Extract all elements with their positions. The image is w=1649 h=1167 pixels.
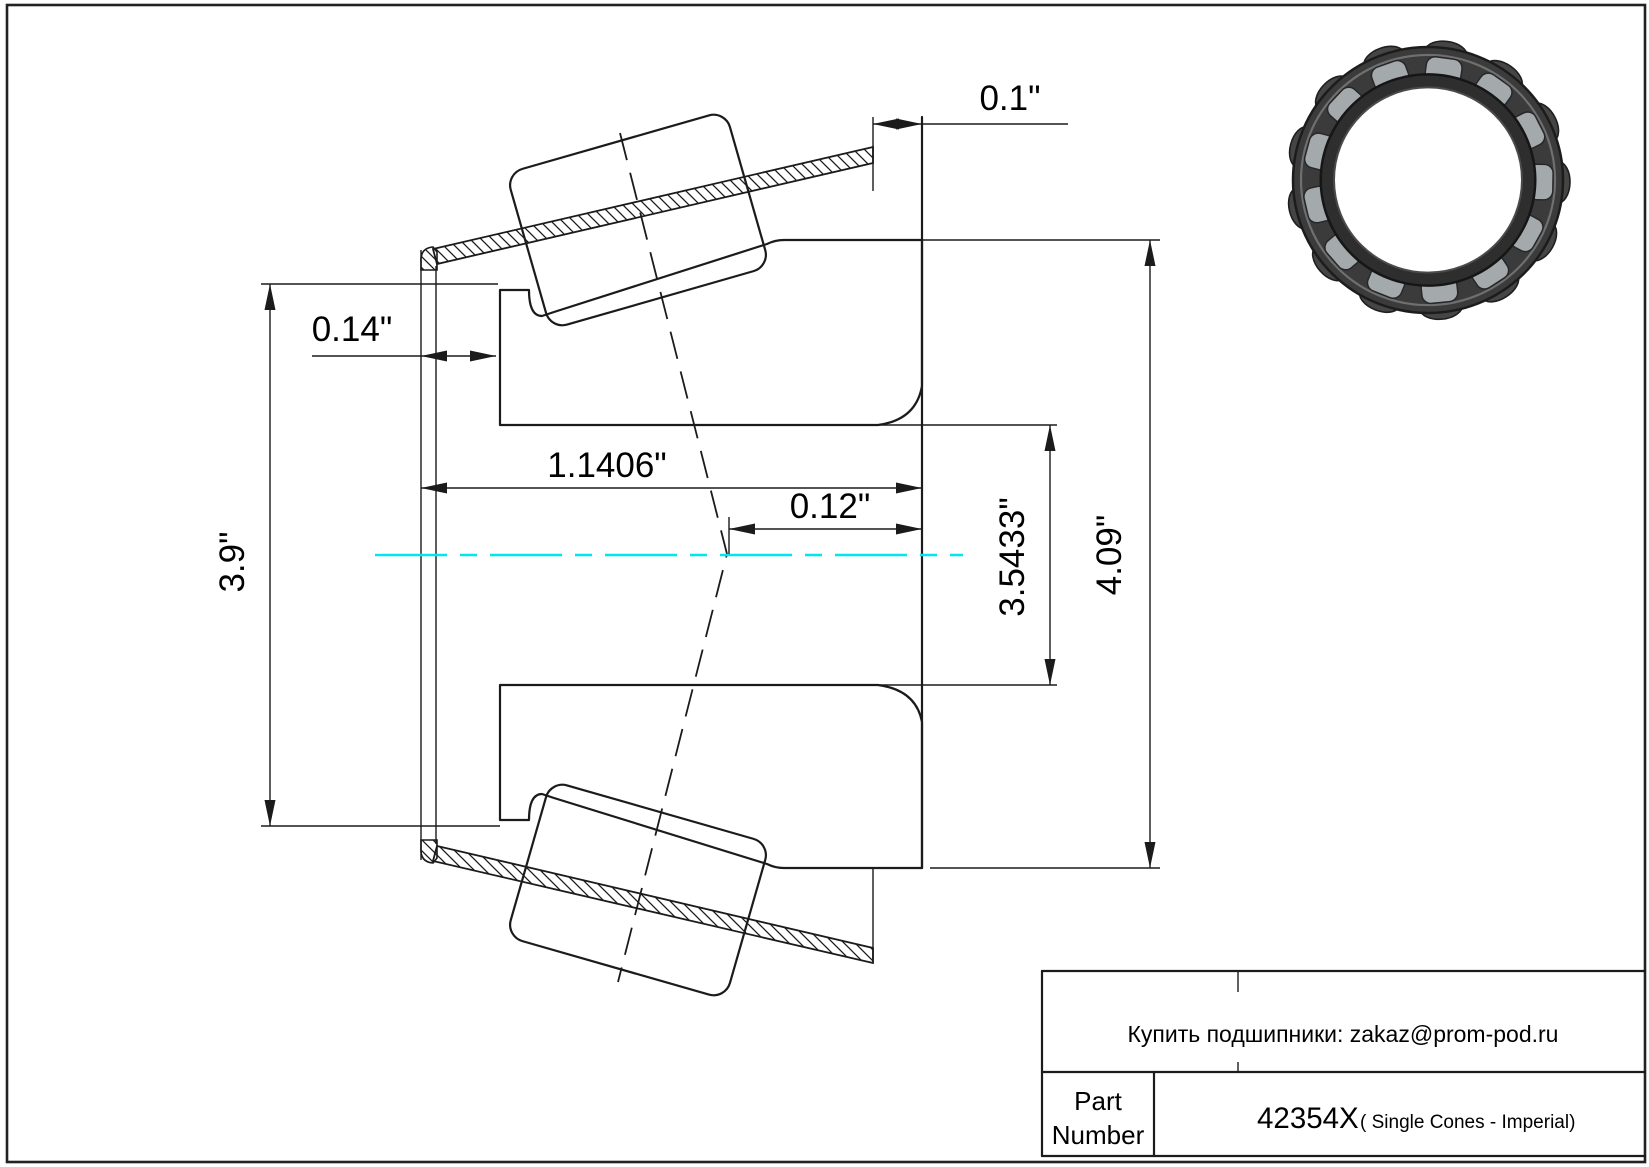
part-series-label: ( Single Cones - Imperial) <box>1360 1112 1575 1133</box>
part-number-value: 42354X <box>1257 1102 1359 1135</box>
cage-rim-curl-bottom <box>421 840 437 863</box>
contact-text: Купить подшипники: zakaz@prom-pod.ru <box>1128 1021 1559 1047</box>
technical-drawing: 0.1" 0.14" 1.1406" 0.12" 3.9" 3.5433" <box>0 0 1649 1167</box>
dim-rib-label: 3.9" <box>213 531 252 592</box>
dim-overhang-label: 0.1" <box>979 79 1040 118</box>
dim-outer-label: 4.09" <box>1090 515 1129 596</box>
dim-cone-width-label: 1.1406" <box>547 446 666 485</box>
cage-rim-curl-top <box>421 247 437 270</box>
dim-load-center-label: 0.12" <box>790 487 871 526</box>
dim-front-width-label: 0.14" <box>312 310 393 349</box>
part-label-line2: Number <box>1052 1120 1145 1150</box>
dim-bore-label: 3.5433" <box>993 497 1032 616</box>
drawing-sheet: 0.1" 0.14" 1.1406" 0.12" 3.9" 3.5433" <box>0 0 1649 1167</box>
bearing-bore <box>1334 87 1522 272</box>
part-label-line1: Part <box>1074 1086 1122 1116</box>
